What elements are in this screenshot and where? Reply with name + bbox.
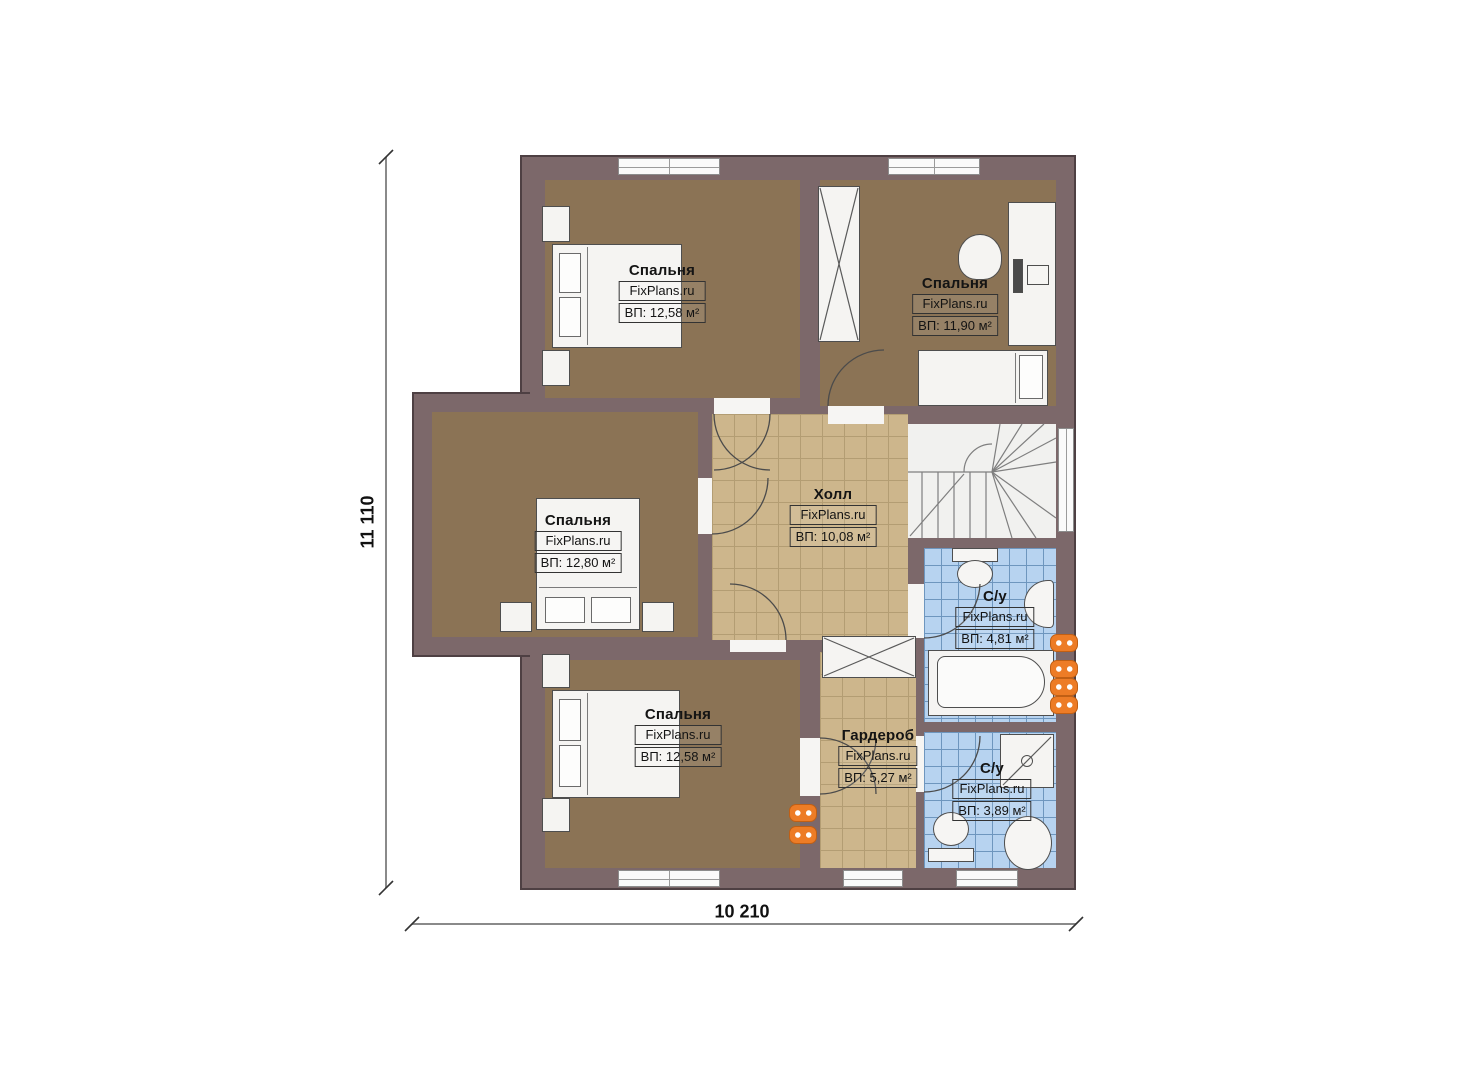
- room-area: ВП: 12,58 м²: [635, 747, 722, 767]
- room-label-bedroom-top-left: Спальня FixPlans.ru ВП: 12,58 м²: [619, 262, 706, 323]
- room-area: ВП: 4,81 м²: [955, 629, 1034, 649]
- room-name: Спальня: [619, 262, 706, 279]
- room-name: Холл: [790, 486, 877, 503]
- room-watermark: FixPlans.ru: [790, 505, 877, 525]
- room-name: Спальня: [535, 512, 622, 529]
- room-label-bathroom-upper: С/у FixPlans.ru ВП: 4,81 м²: [955, 588, 1034, 649]
- room-area: ВП: 5,27 м²: [838, 768, 917, 788]
- room-watermark: FixPlans.ru: [955, 607, 1034, 627]
- dimension-horizontal: 10 210: [714, 902, 769, 923]
- room-watermark: FixPlans.ru: [619, 281, 706, 301]
- room-watermark: FixPlans.ru: [635, 725, 722, 745]
- stairs-treads: [908, 424, 1056, 538]
- room-area: ВП: 10,08 м²: [790, 527, 877, 547]
- radiator: [1050, 696, 1078, 714]
- room-area: ВП: 11,90 м²: [912, 316, 998, 336]
- radiator: [1050, 634, 1078, 652]
- room-name: С/у: [955, 588, 1034, 605]
- room-watermark: FixPlans.ru: [912, 294, 998, 314]
- room-label-bedroom-top-right: Спальня FixPlans.ru ВП: 11,90 м²: [912, 275, 998, 336]
- room-name: Гардероб: [838, 727, 917, 744]
- room-name: Спальня: [912, 275, 998, 292]
- room-name: Спальня: [635, 706, 722, 723]
- room-label-bedroom-middle-left: Спальня FixPlans.ru ВП: 12,80 м²: [535, 512, 622, 573]
- radiator: [1050, 678, 1078, 696]
- room-area: ВП: 12,58 м²: [619, 303, 706, 323]
- room-label-bathroom-lower: С/у FixPlans.ru ВП: 3,89 м²: [952, 760, 1031, 821]
- room-watermark: FixPlans.ru: [838, 746, 917, 766]
- room-watermark: FixPlans.ru: [952, 779, 1031, 799]
- room-area: ВП: 12,80 м²: [535, 553, 622, 573]
- dimension-vertical: 11 110: [358, 495, 379, 548]
- room-name: С/у: [952, 760, 1031, 777]
- room-watermark: FixPlans.ru: [535, 531, 622, 551]
- room-label-bedroom-bottom-left: Спальня FixPlans.ru ВП: 12,58 м²: [635, 706, 722, 767]
- floor-plan: Спальня FixPlans.ru ВП: 12,58 м² Спальня…: [0, 0, 1474, 1080]
- radiator: [1050, 660, 1078, 678]
- room-label-wardrobe: Гардероб FixPlans.ru ВП: 5,27 м²: [838, 727, 917, 788]
- radiator: [789, 826, 817, 844]
- room-area: ВП: 3,89 м²: [952, 801, 1031, 821]
- radiator: [789, 804, 817, 822]
- room-label-hall: Холл FixPlans.ru ВП: 10,08 м²: [790, 486, 877, 547]
